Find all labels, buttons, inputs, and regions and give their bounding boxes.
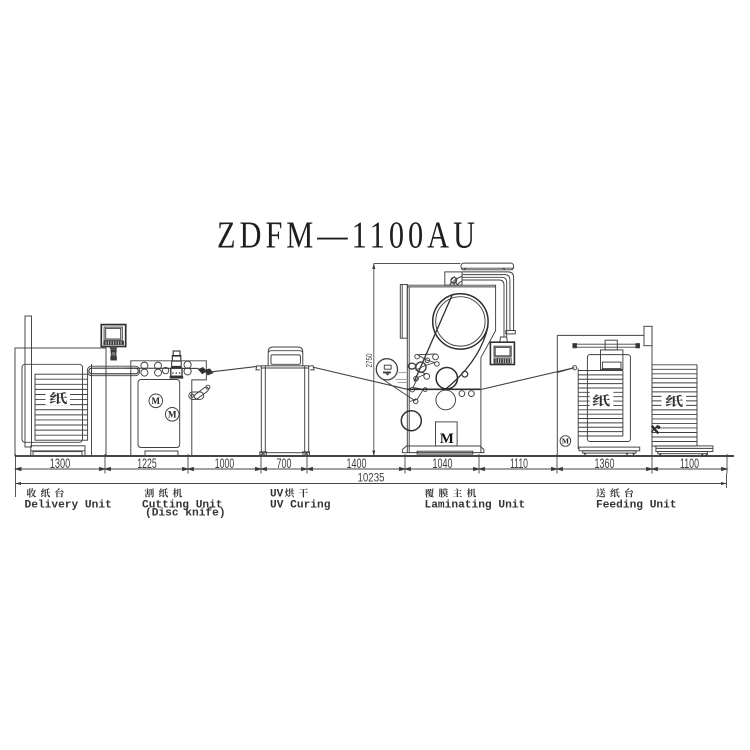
svg-text:1300: 1300 bbox=[50, 456, 71, 471]
svg-text:M: M bbox=[152, 396, 161, 406]
svg-text:1100: 1100 bbox=[680, 456, 699, 471]
svg-text:ZDFM—1100AU: ZDFM—1100AU bbox=[217, 215, 479, 257]
svg-text:(Disc knife): (Disc knife) bbox=[145, 508, 226, 520]
svg-text:M: M bbox=[168, 410, 177, 420]
svg-text:Delivery Unit: Delivery Unit bbox=[25, 499, 112, 511]
svg-text:1000: 1000 bbox=[215, 456, 235, 471]
svg-text:M: M bbox=[440, 431, 454, 447]
svg-text:1225: 1225 bbox=[137, 456, 157, 471]
svg-text:1040: 1040 bbox=[433, 456, 453, 471]
svg-text:1360: 1360 bbox=[595, 456, 615, 471]
svg-text:1400: 1400 bbox=[347, 456, 367, 471]
svg-text:2750: 2750 bbox=[365, 353, 374, 368]
svg-text:UV Curing: UV Curing bbox=[270, 499, 331, 511]
svg-text:Feeding Unit: Feeding Unit bbox=[596, 499, 677, 511]
svg-text:700: 700 bbox=[277, 456, 292, 471]
svg-text:M: M bbox=[562, 437, 569, 446]
svg-text:10235: 10235 bbox=[358, 471, 385, 485]
svg-text:Laminating Unit: Laminating Unit bbox=[425, 499, 526, 511]
svg-text:1110: 1110 bbox=[510, 456, 528, 471]
